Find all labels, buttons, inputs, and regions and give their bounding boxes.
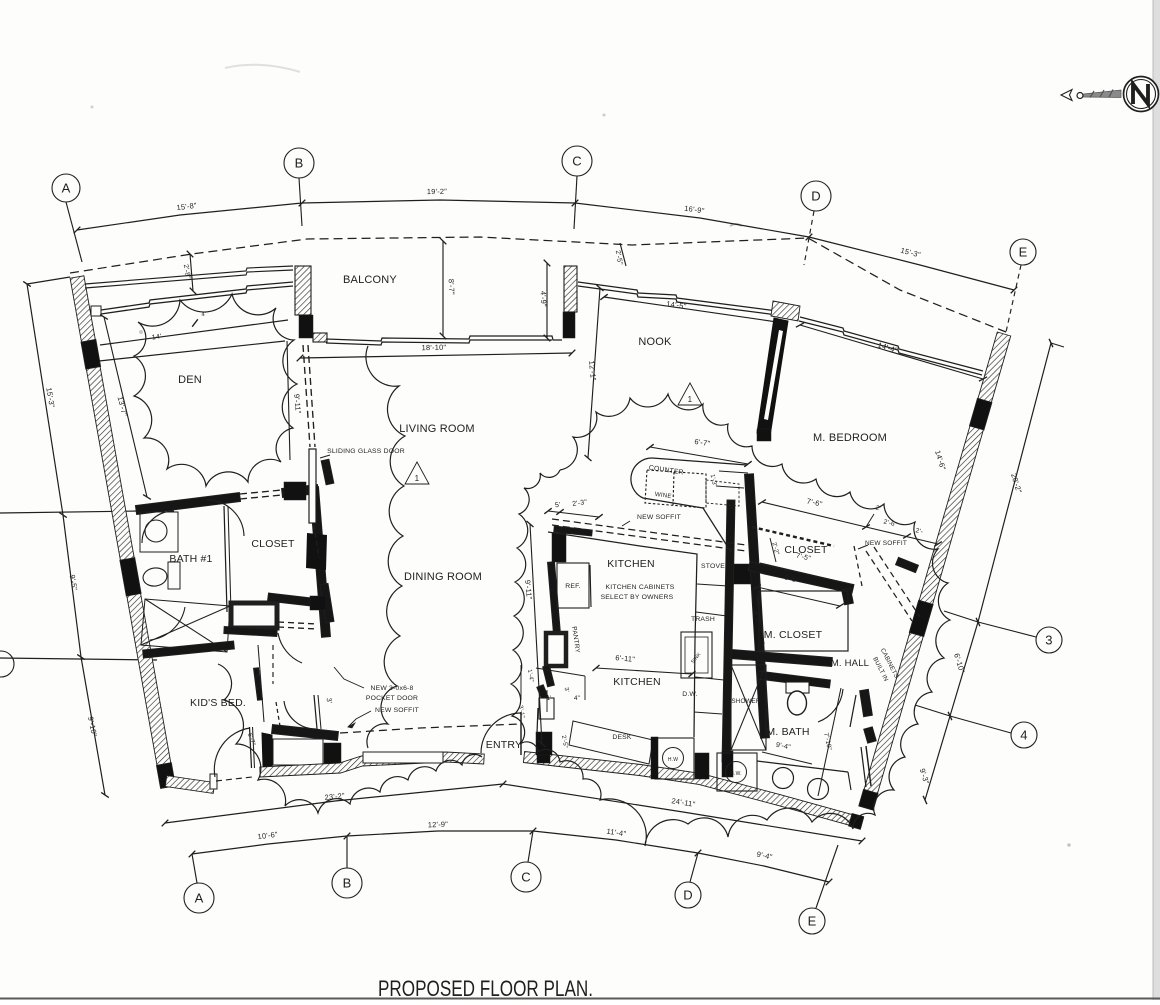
svg-text:3': 3' [563,687,570,693]
svg-text:M. CLOSET: M. CLOSET [764,629,823,641]
svg-text:6'-11": 6'-11" [615,653,636,664]
svg-text:DEN: DEN [178,374,202,386]
svg-text:BALCONY: BALCONY [343,274,397,286]
svg-text:KITCHEN: KITCHEN [607,558,655,570]
svg-text:D: D [683,888,693,903]
svg-text:CLOSET: CLOSET [784,544,828,556]
svg-text:8'-7": 8'-7" [447,279,457,296]
svg-text:B: B [295,156,304,171]
svg-text:4: 4 [1020,728,1027,743]
svg-text:4'-9": 4'-9" [539,291,549,308]
svg-text:3: 3 [1045,633,1052,648]
svg-text:M. BEDROOM: M. BEDROOM [813,432,887,444]
svg-text:E: E [808,914,817,929]
svg-text:NEW SOFFIT: NEW SOFFIT [865,540,907,547]
svg-text:LIVING ROOM: LIVING ROOM [399,423,475,435]
svg-text:POCKET DOOR: POCKET DOOR [366,695,418,702]
svg-text:H.W.: H.W. [730,771,742,777]
svg-text:1: 1 [688,395,693,404]
svg-text:4": 4" [574,695,581,702]
svg-text:CLOSET: CLOSET [251,538,295,550]
svg-text:KITCHEN CABINETS: KITCHEN CABINETS [606,584,675,591]
svg-text:REF.: REF. [565,583,581,590]
svg-text:PROPOSED FLOOR PLAN.: PROPOSED FLOOR PLAN. [378,976,593,1000]
svg-text:H.W: H.W [668,757,678,763]
svg-text:14': 14' [151,333,162,341]
svg-text:KITCHEN: KITCHEN [613,676,661,688]
svg-text:4': 4' [201,312,207,319]
svg-text:C: C [572,154,582,169]
svg-text:19'-2": 19'-2" [427,187,448,196]
svg-text:KID'S BED.: KID'S BED. [190,697,246,709]
svg-text:TRASH: TRASH [691,616,715,623]
svg-text:NOOK: NOOK [638,336,672,348]
svg-text:A: A [62,181,71,196]
svg-text:M. HALL: M. HALL [831,658,869,669]
svg-text:STOVE: STOVE [701,563,725,570]
svg-text:3': 3' [325,697,333,704]
svg-text:DINING ROOM: DINING ROOM [404,571,482,583]
svg-text:E: E [1019,245,1028,260]
svg-text:D.W.: D.W. [682,691,698,698]
svg-text:D: D [811,189,821,204]
svg-text:12'-9": 12'-9" [428,820,449,830]
svg-text:B: B [343,876,352,891]
svg-text:A: A [195,891,204,906]
svg-text:5': 5' [555,502,562,510]
svg-text:DESK: DESK [612,734,632,741]
svg-text:M. BATH: M. BATH [766,726,809,738]
svg-text:NEW SOFFIT: NEW SOFFIT [637,514,681,521]
svg-text:C: C [521,870,531,885]
svg-text:18'-10": 18'-10" [422,343,447,352]
svg-text:SELECT BY OWNERS: SELECT BY OWNERS [601,594,674,601]
svg-text:SHOWER: SHOWER [731,698,760,705]
svg-text:BATH #1: BATH #1 [169,553,212,565]
svg-text:ENTRY: ENTRY [486,739,522,751]
svg-text:9'-11": 9'-11" [292,394,303,415]
svg-text:1: 1 [415,474,420,483]
